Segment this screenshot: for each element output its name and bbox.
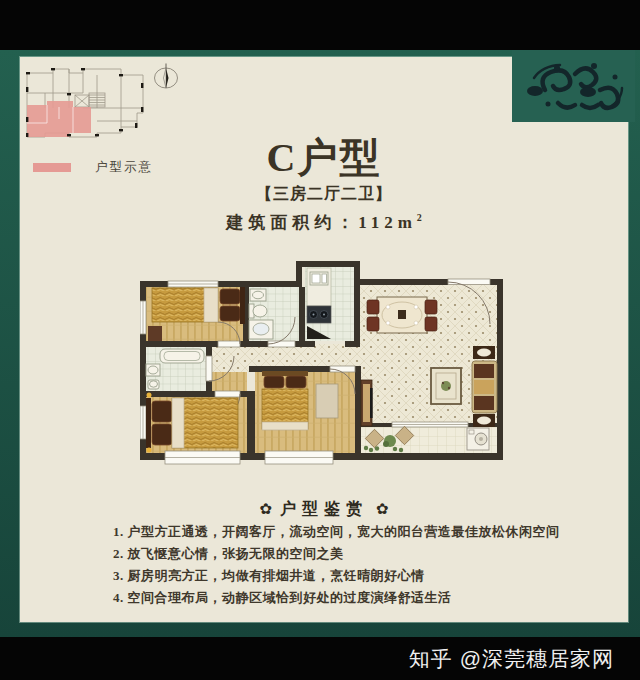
appreciation-item: 1. 户型方正通透，开阔客厅，流动空间，宽大的阳台营造最佳放松休闲空间 [113, 521, 583, 543]
sofa [472, 346, 497, 427]
appreciation-item: 4. 空间合理布局，动静区域恰到好处的过度演绎舒适生活 [113, 587, 583, 609]
flower-icon: ✿ [259, 500, 272, 518]
compass-icon [150, 62, 182, 94]
page-title: C户型 [20, 136, 628, 180]
appreciation-heading-text: 户型鉴赏 [280, 500, 368, 517]
floor-plan-poster: 户型示意 C户型 【三房二厅二卫】 建筑面积约：112m2 [0, 0, 640, 680]
watermark-bar: 知乎 @深莞穗居家网 [0, 637, 640, 680]
floor-plan-image [140, 256, 505, 498]
appreciation-item: 2. 放飞惬意心情，张扬无限的空间之美 [113, 543, 583, 565]
coffee-table [431, 368, 461, 404]
cloud-ornament-icon [512, 50, 635, 122]
area-number: 112 [358, 213, 398, 232]
area-exponent: 2 [417, 212, 422, 223]
watermark-text: 知乎 @深莞穗居家网 [409, 645, 614, 673]
flower-icon: ✿ [376, 500, 389, 518]
cloud-ornament-block [512, 50, 635, 122]
appreciation-list: 1. 户型方正通透，开阔客厅，流动空间，宽大的阳台营造最佳放松休闲空间 2. 放… [113, 521, 583, 609]
dining-table [367, 297, 437, 333]
dresser-icon [148, 326, 162, 341]
area-label: 建筑面积约： [226, 213, 358, 232]
tv-cabinet [361, 380, 373, 426]
area-text: 建筑面积约：112m2 [20, 211, 628, 234]
area-unit: m [398, 213, 417, 232]
appreciation-item: 3. 厨房明亮方正，均做有排烟井道，烹饪晴朗好心情 [113, 565, 583, 587]
top-black-bar [0, 0, 640, 50]
appreciation-heading: ✿户型鉴赏✿ [20, 499, 628, 520]
page-subtitle: 【三房二厅二卫】 [20, 184, 628, 205]
